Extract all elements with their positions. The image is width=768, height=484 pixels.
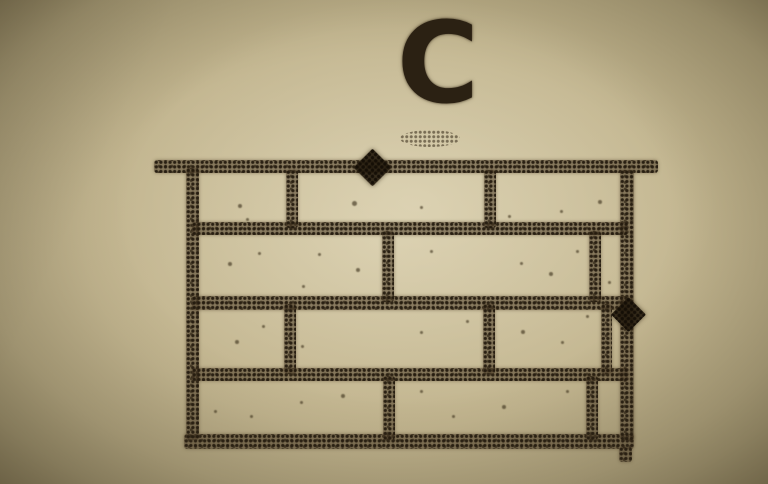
brick-speckle — [560, 210, 563, 213]
photo-of-diagram: C — [0, 0, 768, 484]
head-joint — [286, 170, 298, 228]
brick-speckle — [566, 390, 569, 393]
wall-bottom-line — [184, 434, 634, 449]
brick-speckle — [520, 262, 523, 265]
brick-speckle — [250, 415, 253, 418]
brick-speckle — [341, 394, 345, 398]
head-joint — [586, 376, 598, 440]
brick-speckle — [502, 405, 506, 409]
brick-speckle — [608, 281, 611, 284]
brick-speckle — [302, 285, 305, 288]
brick-speckle — [420, 331, 423, 334]
brick-speckle — [452, 415, 455, 418]
brick-speckle — [586, 315, 589, 318]
brick-speckle — [238, 204, 242, 208]
brick-speckle — [300, 401, 303, 404]
head-joint — [483, 304, 495, 374]
head-joint — [284, 304, 296, 374]
brick-speckle — [598, 200, 602, 204]
brick-speckle — [352, 201, 357, 206]
brick-speckle — [508, 215, 511, 218]
brick-speckle — [318, 253, 321, 256]
brick-speckle — [301, 345, 304, 348]
brick-speckle — [420, 206, 423, 209]
brick-speckle — [549, 272, 553, 276]
bed-joint — [192, 296, 628, 310]
head-joint — [484, 170, 496, 228]
brick-speckle — [356, 268, 360, 272]
brick-speckle — [430, 250, 433, 253]
brick-speckle — [576, 250, 579, 253]
brick-speckle — [235, 340, 239, 344]
brick-speckle — [258, 252, 261, 255]
brick-speckle — [420, 390, 423, 393]
head-joint — [589, 231, 601, 302]
head-joint — [383, 376, 395, 440]
bed-joint — [192, 368, 628, 381]
figure-label: C — [378, 8, 498, 120]
brick-speckle — [561, 341, 564, 344]
brick-speckle — [262, 325, 265, 328]
corner-tail-mark — [619, 447, 632, 462]
pointer-diamond-top — [353, 148, 391, 186]
bed-joint — [192, 222, 628, 235]
brick-speckle — [521, 330, 525, 334]
coping-line — [154, 160, 658, 173]
brick-speckle — [466, 320, 469, 323]
head-joint — [382, 231, 394, 302]
brick-speckle — [228, 262, 232, 266]
brick-speckle — [246, 218, 249, 221]
brick-speckle — [214, 410, 217, 413]
